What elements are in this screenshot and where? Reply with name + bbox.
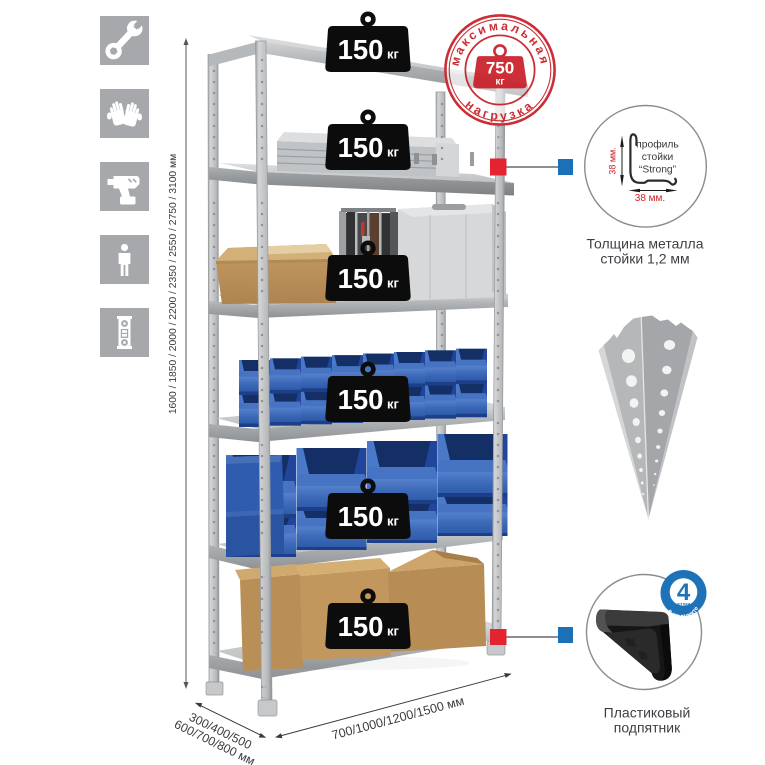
- svg-text:38 мм.: 38 мм.: [635, 193, 665, 204]
- svg-text:подпятник: подпятник: [614, 720, 681, 736]
- svg-text:штуки: штуки: [677, 602, 691, 607]
- svg-text:профиль: профиль: [636, 139, 679, 151]
- svg-text:Пластиковый: Пластиковый: [604, 705, 691, 721]
- svg-text:“Strong”: “Strong”: [639, 164, 677, 175]
- svg-text:1600 / 1850 / 2000 / 2200 / 23: 1600 / 1850 / 2000 / 2200 / 2350 / 2550 …: [168, 154, 179, 414]
- svg-text:стойки 1,2 мм: стойки 1,2 мм: [600, 251, 689, 267]
- svg-text:750: 750: [486, 59, 514, 78]
- svg-text:кг: кг: [495, 77, 504, 88]
- svg-text:Толщина металла: Толщина металла: [587, 236, 704, 252]
- svg-text:стойки: стойки: [642, 152, 674, 163]
- svg-text:38 мм.: 38 мм.: [608, 147, 618, 174]
